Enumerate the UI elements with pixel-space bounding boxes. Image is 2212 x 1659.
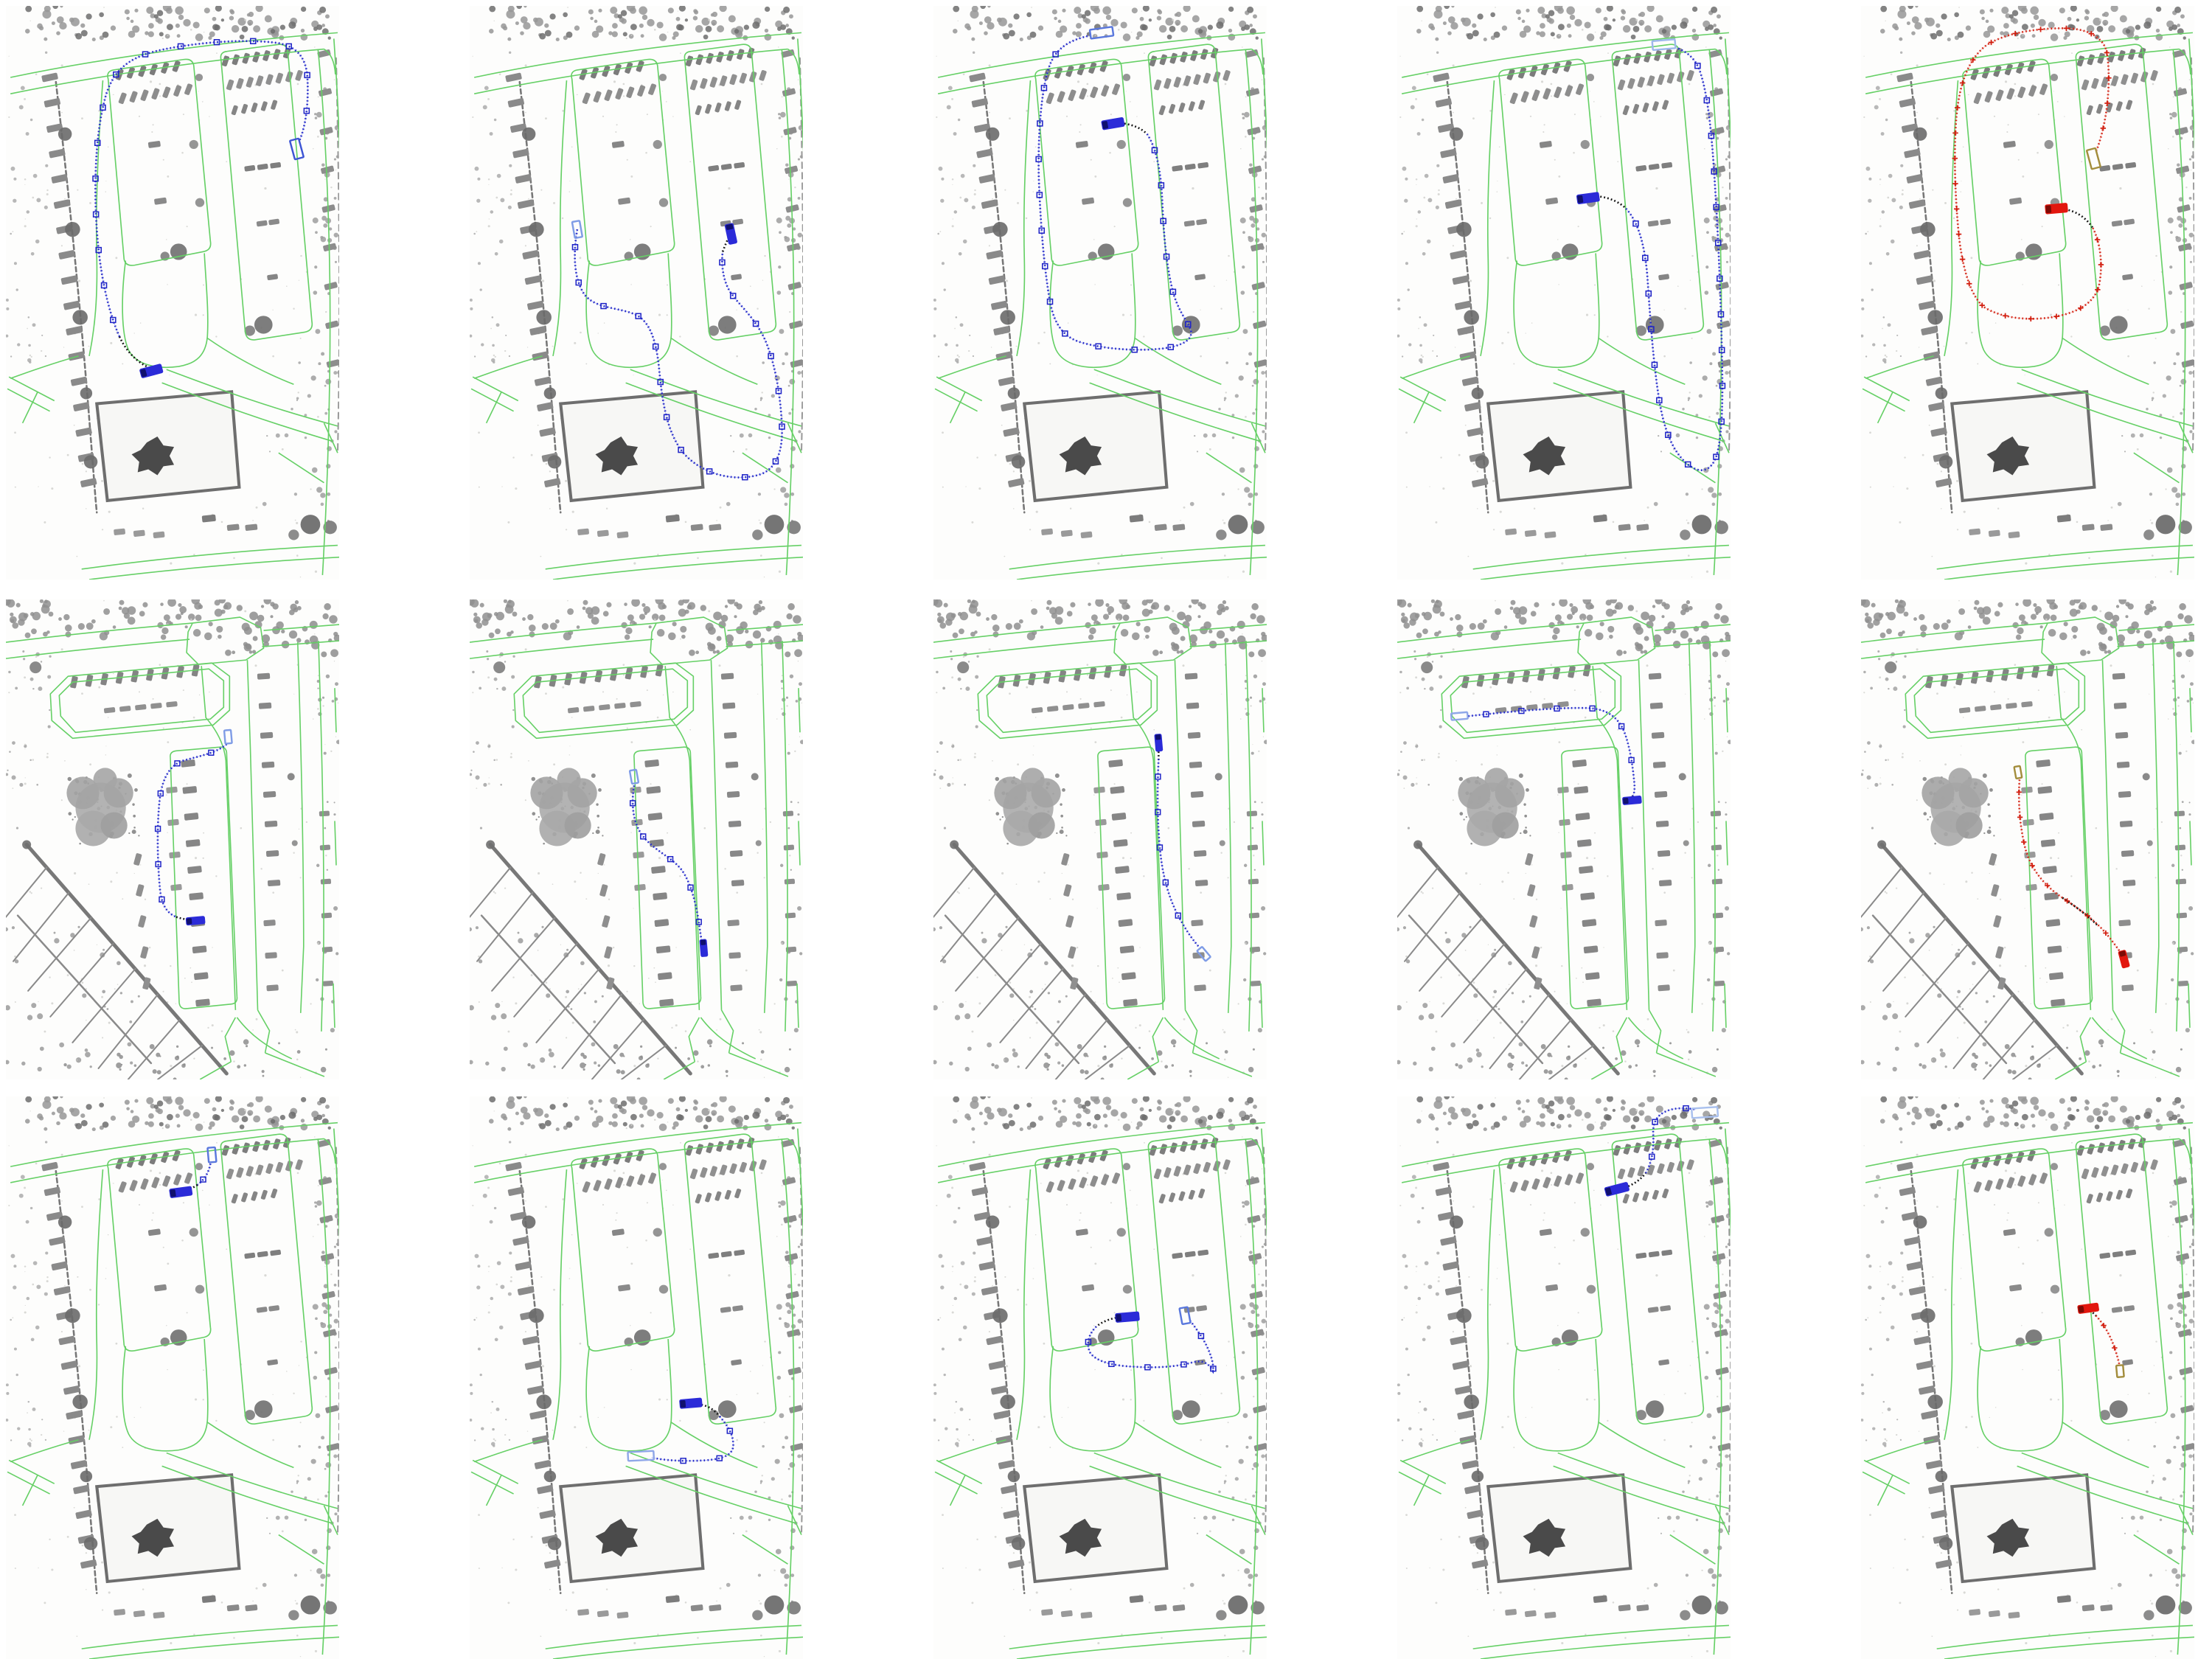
map-blob xyxy=(1450,128,1463,141)
parked-car xyxy=(262,762,275,768)
map-blob xyxy=(992,222,1008,237)
panel-map-svg xyxy=(6,1096,339,1659)
map-blob xyxy=(1123,1285,1132,1294)
map-blob xyxy=(544,387,556,399)
parked-car xyxy=(265,952,277,959)
parked-car xyxy=(1593,515,1607,523)
map-blob xyxy=(751,773,759,780)
parked-car-row xyxy=(2057,515,2071,523)
parked-car xyxy=(263,919,276,926)
parked-car xyxy=(266,984,279,991)
parked-car xyxy=(727,919,740,926)
panel-map-svg xyxy=(933,1096,1267,1659)
parked-car xyxy=(2100,524,2112,531)
trajectory-panel-r1c3 xyxy=(933,6,1267,580)
parked-car xyxy=(1155,1604,1167,1612)
parked-car xyxy=(709,524,721,531)
panel-map-svg xyxy=(470,6,803,580)
parked-car xyxy=(785,913,796,919)
parked-car xyxy=(1505,529,1517,536)
parked-car xyxy=(169,852,181,859)
parked-car xyxy=(1192,821,1206,827)
parked-car xyxy=(1714,981,1725,987)
parked-car-row xyxy=(1130,1595,1144,1603)
map-blob xyxy=(536,1394,552,1409)
map-blob xyxy=(1220,841,1225,846)
map-blob xyxy=(557,768,581,791)
parked-car xyxy=(319,810,330,816)
parked-car xyxy=(2177,913,2188,919)
map-blob xyxy=(2143,1610,2154,1621)
parked-car xyxy=(1194,984,1206,991)
map-blob xyxy=(101,812,128,838)
trajectory-panel-r1c1 xyxy=(6,6,339,580)
map-blob xyxy=(653,140,662,149)
map-background xyxy=(6,599,339,1079)
map-blob xyxy=(1000,310,1015,324)
parked-car xyxy=(1659,880,1672,886)
map-background xyxy=(470,599,803,1079)
map-blob xyxy=(1008,1470,1020,1482)
panel-map-svg xyxy=(1397,599,1731,1079)
parked-car xyxy=(726,762,739,768)
parked-car xyxy=(266,850,279,857)
map-blob xyxy=(1472,1470,1484,1482)
parked-car xyxy=(1655,919,1667,926)
map-blob xyxy=(1216,1610,1226,1621)
parked-car xyxy=(1653,762,1666,768)
map-blob xyxy=(288,529,299,540)
parked-car xyxy=(153,1612,164,1618)
map-blob xyxy=(2051,1285,2059,1294)
parked-car xyxy=(1041,1609,1053,1615)
parked-car xyxy=(1969,1609,1980,1615)
map-blob xyxy=(1456,222,1472,237)
parked-car xyxy=(1560,852,1572,859)
parked-car xyxy=(1248,845,1259,851)
map-blob xyxy=(1456,1308,1472,1323)
panel-map-svg xyxy=(470,1096,803,1659)
vehicle-box xyxy=(186,916,206,925)
map-blob xyxy=(1475,455,1489,468)
parked-car xyxy=(666,1595,680,1603)
vehicle-box xyxy=(2045,203,2068,215)
parked-car xyxy=(2115,732,2129,739)
map-blob xyxy=(1117,140,1126,149)
parked-car xyxy=(1172,1604,1185,1612)
map-blob xyxy=(84,1537,97,1551)
parked-car xyxy=(709,1604,721,1612)
parked-car xyxy=(783,810,794,816)
parked-car xyxy=(1656,821,1669,827)
map-blob xyxy=(1421,661,1433,673)
panel-map-svg xyxy=(470,599,803,1079)
panel-map-svg xyxy=(6,599,339,1079)
map-blob xyxy=(254,316,273,333)
parked-car-row xyxy=(202,515,216,523)
map-blob xyxy=(2051,74,2058,81)
parked-car xyxy=(2100,1604,2112,1612)
map-blob xyxy=(1123,1163,1130,1170)
map-blob xyxy=(659,198,668,207)
map-blob xyxy=(1692,1596,1712,1615)
map-blob xyxy=(957,661,969,673)
parked-car xyxy=(1989,530,2000,538)
map-blob xyxy=(548,1537,561,1551)
vehicle-box xyxy=(1154,734,1163,752)
map-blob xyxy=(195,198,204,207)
map-blob xyxy=(2156,515,2176,534)
parked-car xyxy=(321,913,333,919)
parked-car xyxy=(1593,1595,1607,1603)
map-blob xyxy=(58,1216,72,1229)
trajectory-panel-r3c1 xyxy=(6,1096,339,1659)
map-blob xyxy=(22,841,31,849)
parked-car xyxy=(2118,919,2131,926)
map-blob xyxy=(565,812,591,838)
parked-car xyxy=(2082,1604,2095,1612)
panel-map-svg xyxy=(1397,6,1731,580)
vehicle-box xyxy=(1115,1311,1140,1323)
map-blob xyxy=(1000,1394,1015,1409)
map-blob xyxy=(522,128,535,141)
trajectory-panel-r3c5 xyxy=(1861,1096,2194,1659)
parked-car xyxy=(666,515,680,523)
map-blob xyxy=(1877,841,1886,849)
map-blob xyxy=(2051,1163,2058,1170)
parked-car xyxy=(1096,852,1108,859)
map-blob xyxy=(65,222,80,237)
trajectory-panel-r2c2 xyxy=(470,599,803,1079)
parked-car xyxy=(787,981,798,987)
map-blob xyxy=(2143,529,2154,540)
map-blob xyxy=(254,1400,273,1418)
trajectory-prediction-figure xyxy=(0,0,2212,1659)
panel-map-svg xyxy=(6,6,339,580)
map-blob xyxy=(1935,1470,1947,1482)
parked-car xyxy=(1189,762,1203,768)
map-blob xyxy=(659,74,667,81)
map-blob xyxy=(195,1163,203,1170)
parked-car-row xyxy=(1593,1595,1607,1603)
map-blob xyxy=(1927,310,1943,324)
map-blob xyxy=(2045,1228,2053,1237)
parked-car xyxy=(616,1612,628,1618)
map-blob xyxy=(1913,1216,1927,1229)
parked-car xyxy=(1712,879,1723,885)
parked-car xyxy=(616,532,628,539)
trajectory-panel-r2c5 xyxy=(1861,599,2194,1079)
map-blob xyxy=(1492,812,1519,838)
parked-car xyxy=(730,850,743,857)
map-blob xyxy=(1935,387,1947,399)
map-blob xyxy=(1913,128,1927,141)
map-blob xyxy=(1949,768,1972,791)
map-blob xyxy=(752,1610,762,1621)
parked-car xyxy=(1061,530,1073,538)
parked-car xyxy=(2082,524,2095,531)
map-blob xyxy=(189,140,198,149)
parked-car xyxy=(597,530,609,538)
map-blob xyxy=(1450,1216,1463,1229)
map-blob xyxy=(72,310,88,324)
map-blob xyxy=(986,128,999,141)
parked-car xyxy=(1155,524,1167,531)
parked-car xyxy=(1618,1604,1631,1612)
map-blob xyxy=(1683,841,1689,846)
parked-car xyxy=(2174,810,2185,816)
parked-car xyxy=(2121,984,2134,991)
map-blob xyxy=(80,1470,92,1482)
parked-car xyxy=(1649,673,1662,680)
map-blob xyxy=(1228,515,1248,534)
map-blob xyxy=(1216,529,1226,540)
parked-car xyxy=(245,524,257,531)
parked-car-row xyxy=(2057,1595,2071,1603)
parked-car-row xyxy=(666,1595,680,1603)
map-blob xyxy=(756,841,762,846)
map-blob xyxy=(1885,661,1896,673)
parked-car xyxy=(320,845,331,851)
panel-map-svg xyxy=(1861,6,2194,580)
map-blob xyxy=(1956,812,1983,838)
parked-car xyxy=(321,879,332,885)
map-blob xyxy=(1117,1228,1126,1237)
parked-car xyxy=(265,821,278,827)
panel-map-svg xyxy=(1397,1096,1731,1659)
map-blob xyxy=(2156,1596,2176,1615)
map-blob xyxy=(1123,74,1130,81)
map-blob xyxy=(536,310,552,324)
trajectory-panel-r3c3 xyxy=(933,1096,1267,1659)
parked-car xyxy=(260,732,274,739)
parked-car xyxy=(1130,515,1144,523)
map-blob xyxy=(1920,1308,1935,1323)
parked-car xyxy=(1713,913,1724,919)
map-background xyxy=(933,599,1267,1079)
map-blob xyxy=(1587,1285,1596,1294)
parked-car xyxy=(691,1604,703,1612)
map-blob xyxy=(1587,1163,1594,1170)
map-blob xyxy=(189,1228,198,1237)
map-blob xyxy=(1485,768,1509,791)
parked-car xyxy=(1562,884,1573,891)
panel-map-svg xyxy=(933,6,1267,580)
parked-car xyxy=(577,529,589,536)
map-blob xyxy=(1581,140,1590,149)
map-blob xyxy=(2110,316,2128,333)
map-background xyxy=(1397,599,1731,1079)
map-blob xyxy=(195,1285,204,1294)
parked-car xyxy=(1061,1610,1073,1617)
map-blob xyxy=(1581,1228,1590,1237)
parked-car xyxy=(1618,524,1631,531)
parked-car xyxy=(2112,673,2126,680)
parked-car xyxy=(2121,850,2135,857)
map-blob xyxy=(529,1308,544,1323)
parked-car xyxy=(2114,703,2127,709)
parked-car xyxy=(259,703,272,709)
parked-car xyxy=(1655,791,1668,798)
parked-car xyxy=(1191,791,1204,798)
panel-map-svg xyxy=(933,599,1267,1079)
parked-car xyxy=(1080,532,1092,539)
map-blob xyxy=(493,661,505,673)
parked-car xyxy=(1041,529,1053,536)
parked-car xyxy=(1652,732,1665,739)
parked-car xyxy=(1656,952,1669,959)
map-blob xyxy=(1008,387,1020,399)
parked-car-row xyxy=(1593,515,1607,523)
map-blob xyxy=(58,128,72,141)
parked-car xyxy=(727,791,740,798)
map-blob xyxy=(765,1596,785,1615)
map-blob xyxy=(1680,529,1690,540)
parked-car xyxy=(691,524,703,531)
map-blob xyxy=(1182,1400,1200,1418)
map-blob xyxy=(1029,812,1055,838)
map-background xyxy=(1861,599,2194,1079)
parked-car xyxy=(2024,852,2036,859)
vehicle-box xyxy=(679,1397,703,1408)
map-blob xyxy=(72,1394,88,1409)
parked-car xyxy=(1711,845,1722,851)
parked-car xyxy=(202,1595,216,1603)
map-blob xyxy=(765,515,785,534)
map-blob xyxy=(1228,1596,1248,1615)
map-blob xyxy=(1123,198,1132,207)
parked-car xyxy=(1195,880,1208,886)
map-blob xyxy=(65,1308,80,1323)
map-blob xyxy=(1692,515,1712,534)
trajectory-panel-r2c1 xyxy=(6,599,339,1079)
map-blob xyxy=(1021,768,1045,791)
map-blob xyxy=(1012,1537,1025,1551)
parked-car xyxy=(2117,762,2130,768)
parked-car xyxy=(1989,1610,2000,1617)
map-blob xyxy=(992,1308,1008,1323)
map-blob xyxy=(1472,387,1484,399)
parked-car xyxy=(1650,703,1663,709)
map-blob xyxy=(2143,773,2150,780)
trajectory-panel-r1c2 xyxy=(470,6,803,580)
parked-car xyxy=(1969,529,1980,536)
parked-car xyxy=(1525,530,1537,538)
parked-car xyxy=(2057,1595,2071,1603)
map-blob xyxy=(2045,140,2053,149)
parked-car xyxy=(728,952,741,959)
parked-car xyxy=(1130,1595,1144,1603)
parked-car xyxy=(1188,732,1201,739)
map-blob xyxy=(1927,1394,1943,1409)
parked-car xyxy=(2178,981,2189,987)
parked-car xyxy=(245,1604,257,1612)
parked-car xyxy=(1186,703,1200,709)
trajectory-panel-r2c3 xyxy=(933,599,1267,1079)
parked-car xyxy=(1247,810,1258,816)
parked-car xyxy=(268,880,281,886)
parked-car xyxy=(263,791,276,798)
map-blob xyxy=(1012,455,1025,468)
map-blob xyxy=(2110,1400,2128,1418)
map-blob xyxy=(288,773,295,780)
parked-car xyxy=(1172,524,1185,531)
parked-car xyxy=(2176,879,2187,885)
parked-car xyxy=(634,884,646,891)
trajectory-panel-r1c4 xyxy=(1397,6,1731,580)
map-blob xyxy=(1646,1400,1664,1418)
map-blob xyxy=(659,1285,668,1294)
parked-car xyxy=(1636,1604,1649,1612)
parked-car xyxy=(2025,884,2037,891)
parked-car xyxy=(1194,850,1207,857)
map-blob xyxy=(2147,841,2153,846)
map-blob xyxy=(544,1470,556,1482)
map-blob xyxy=(659,1163,667,1170)
parked-car xyxy=(2120,821,2133,827)
parked-car xyxy=(2175,845,2186,851)
parked-car xyxy=(633,852,644,859)
parked-car xyxy=(1711,810,1722,816)
map-blob xyxy=(1939,1537,1952,1551)
panel-map-svg xyxy=(1861,599,2194,1079)
map-blob xyxy=(486,841,495,849)
map-blob xyxy=(1215,773,1222,780)
parked-car xyxy=(724,732,737,739)
map-blob xyxy=(1679,773,1686,780)
map-blob xyxy=(94,768,117,791)
map-blob xyxy=(986,1216,999,1229)
parked-car xyxy=(323,981,334,987)
parked-car xyxy=(202,515,216,523)
parked-car xyxy=(114,529,125,536)
trajectory-panel-r2c4 xyxy=(1397,599,1731,1079)
map-blob xyxy=(529,222,544,237)
map-blob xyxy=(1464,310,1479,324)
parked-car xyxy=(1544,532,1556,539)
parked-car xyxy=(1185,673,1198,680)
parked-car xyxy=(227,524,240,531)
map-blob xyxy=(1920,222,1935,237)
parked-car xyxy=(730,984,742,991)
map-blob xyxy=(653,1228,662,1237)
map-blob xyxy=(288,1610,299,1621)
map-blob xyxy=(195,74,203,81)
parked-car xyxy=(170,884,182,891)
map-blob xyxy=(292,841,298,846)
map-blob xyxy=(1464,1394,1479,1409)
parked-car xyxy=(227,1604,240,1612)
map-blob xyxy=(718,1400,737,1418)
parked-car xyxy=(723,703,736,709)
map-blob xyxy=(1587,74,1594,81)
parked-car xyxy=(728,821,742,827)
parked-car xyxy=(114,1609,125,1615)
parked-car xyxy=(785,879,796,885)
parked-car xyxy=(784,845,795,851)
parked-car xyxy=(2008,532,2020,539)
map-blob xyxy=(1939,455,1952,468)
parked-car xyxy=(1191,919,1203,926)
parked-car xyxy=(1658,850,1671,857)
trajectory-panel-r3c4 xyxy=(1397,1096,1731,1659)
parked-car xyxy=(597,1610,609,1617)
map-blob xyxy=(1680,1610,1690,1621)
map-blob xyxy=(718,316,737,333)
parked-car xyxy=(153,532,164,539)
map-blob xyxy=(84,455,97,468)
parked-car xyxy=(257,673,271,680)
